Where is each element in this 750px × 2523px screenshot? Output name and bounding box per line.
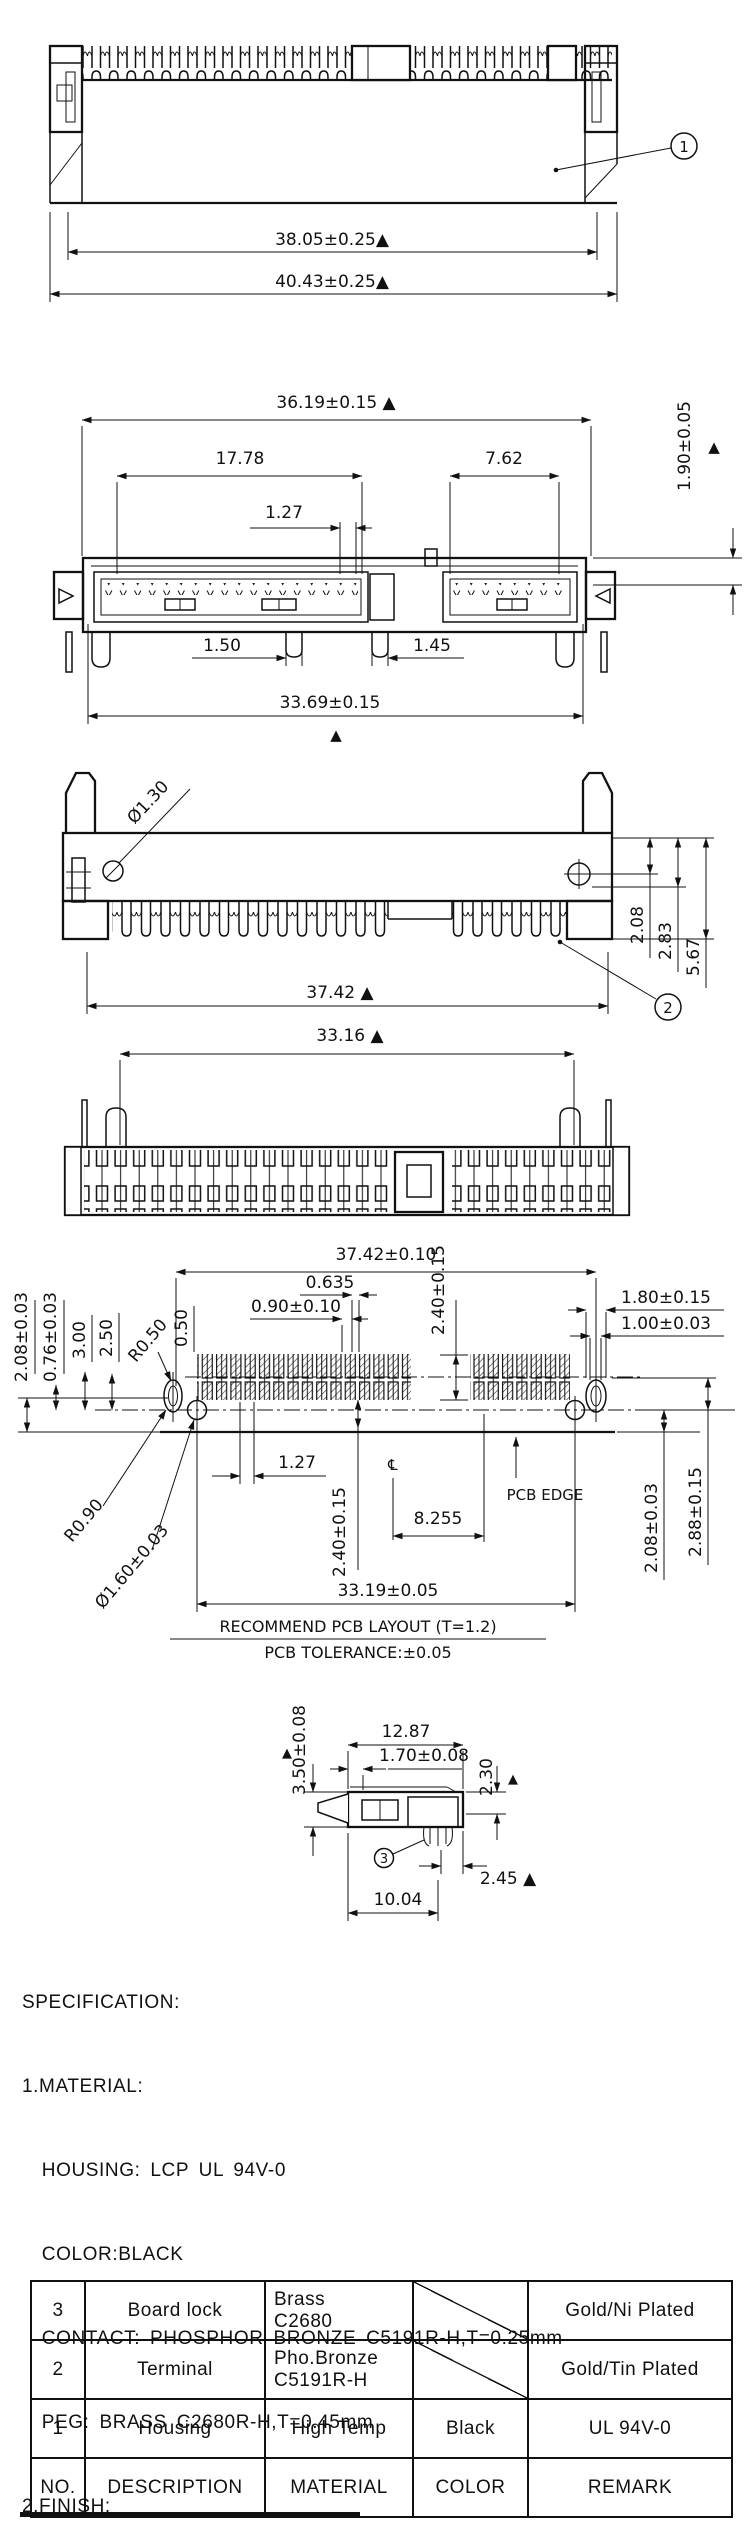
header-material: MATERIAL (265, 2458, 413, 2517)
dim-side-width: 12.87 (382, 1722, 431, 1742)
side-solder-pins (424, 1827, 453, 1846)
parts-table-row-1: 1 Housing High Temp Black UL 94V-0 (31, 2399, 732, 2458)
dim-pcb-half-pitch: 0.635 (306, 1273, 355, 1293)
dim-pcb-pad-width: 0.90±0.10 (251, 1297, 341, 1317)
front-key-block (370, 574, 394, 620)
header-color: COLOR (413, 2458, 528, 2517)
pcb-caption-title: RECOMMEND PCB LAYOUT (T=1.2) (219, 1617, 496, 1636)
dim-pcb-left-3: 3.00 (70, 1321, 90, 1359)
cell-color-1: Black (413, 2399, 528, 2458)
title-block-border (20, 2512, 360, 2517)
balloon-2-number: 2 (663, 999, 673, 1017)
dim-front-lip-height: 1.90±0.05 (675, 401, 695, 491)
dim-top-overall-width: 40.43±0.25▲ (275, 272, 390, 292)
header-no: NO. (31, 2458, 85, 2517)
spec-line-title: SPECIFICATION: (22, 1989, 742, 2017)
spec-line-material: 1.MATERIAL: (22, 2073, 742, 2101)
cell-color-3 (413, 2281, 528, 2340)
bottom-left-post (106, 1108, 126, 1147)
bottom-center-key (395, 1152, 443, 1212)
header-remark: REMARK (528, 2458, 732, 2517)
rear-left-ear (66, 773, 95, 833)
dim-pcb-edge-1: 2.08±0.03 (642, 1483, 662, 1573)
dim-pcb-right-slot-w: 1.00±0.03 (621, 1314, 711, 1334)
dim-front-peg-left: 1.50 (203, 636, 241, 656)
rear-right-ear (583, 773, 612, 833)
bottom-terminals-right (452, 1150, 622, 1212)
header-description: DESCRIPTION (85, 2458, 265, 2517)
dim-side-wall: 1.70±0.08 (379, 1746, 469, 1766)
side-view: ▲ 3.50±0.08 12.87 1.70±0.08 2.30 ▲ 3 (282, 1705, 537, 1921)
dim-top-body-width: 38.05±0.25▲ (275, 230, 390, 250)
dim-pcb-overall: 37.42±0.10 (336, 1245, 437, 1265)
bottom-view: 33.16 ▲ (65, 1026, 629, 1215)
cell-remark-3: Gold/Ni Plated (528, 2281, 732, 2340)
dim-pcb-hole: Ø1.60±0.03 (91, 1521, 173, 1613)
rear-view: Ø1.30 2.08 2.83 5.67 2 37.42 ▲ (63, 773, 714, 1020)
spec-line-color: COLOR:BLACK (22, 2241, 742, 2269)
cell-description-3: Board lock (85, 2281, 265, 2340)
balloon-1-leader (556, 148, 671, 170)
dim-side-pin-offset: 2.45 ▲ (480, 1869, 537, 1889)
bottom-right-post (560, 1108, 580, 1147)
cell-description-2: Terminal (85, 2340, 265, 2399)
balloon-3-leader (393, 1840, 424, 1854)
dim-pcb-left-1: 2.08±0.03 (12, 1292, 32, 1382)
dim-front-pitch: 1.27 (265, 503, 303, 523)
dim-side-height: 3.50±0.08 (290, 1705, 310, 1795)
dim-rear-c: 5.67 (684, 938, 704, 976)
dim-pcb-pitch: 1.27 (278, 1453, 316, 1473)
dim-pcb-pad-height2: 2.40±0.15 (330, 1487, 350, 1577)
dim-pcb-left-2: 0.76±0.03 (41, 1292, 61, 1382)
dim-rear-a: 2.08 (628, 906, 648, 944)
cell-color-2 (413, 2340, 528, 2399)
dim-pcb-pad-height: 2.40±0.15 (429, 1245, 449, 1335)
cell-remark-2: Gold/Tin Plated (528, 2340, 732, 2399)
drawing-canvas: 1 38.05±0.25▲ 40.43±0.25▲ 36.19±0.15 ▲ 1… (0, 0, 750, 1940)
rear-solder-tails-right (452, 901, 567, 945)
top-mid-block (352, 46, 410, 80)
dim-rear-hole: Ø1.30 (124, 777, 174, 828)
dim-pcb-center-offset: 8.255 (414, 1509, 463, 1529)
dim-bottom-span: 33.16 ▲ (316, 1026, 384, 1046)
dim-pcb-radius: R0.90 (61, 1495, 108, 1546)
spec-line-housing: HOUSING: LCP UL 94V-0 (22, 2157, 742, 2185)
cell-material-3: Brass C2680 (265, 2281, 413, 2340)
parts-table: 3 Board lock Brass C2680 Gold/Ni Plated … (30, 2280, 733, 2518)
pcb-caption-tolerance: PCB TOLERANCE:±0.05 (264, 1643, 451, 1662)
cell-no-3: 3 (31, 2281, 85, 2340)
dim-front-slot-long: 17.78 (216, 449, 265, 469)
datum-triangle-front-span: ▲ (330, 726, 342, 744)
bottom-terminals-left (84, 1150, 389, 1212)
side-nose (318, 1794, 348, 1823)
dim-pcb-left-radius: R0.50 (125, 1315, 172, 1366)
parts-table-row-2: 2 Terminal Pho.Bronze C5191R-H Gold/Tin … (31, 2340, 732, 2399)
dim-side-depth: 2.30 (477, 1758, 497, 1796)
drawing-page: 1 38.05±0.25▲ 40.43±0.25▲ 36.19±0.15 ▲ 1… (0, 0, 750, 2523)
cell-material-2: Pho.Bronze C5191R-H (265, 2340, 413, 2399)
parts-table-row-3: 3 Board lock Brass C2680 Gold/Ni Plated (31, 2281, 732, 2340)
cell-material-1: High Temp (265, 2399, 413, 2458)
dim-pcb-edge-2: 2.88±0.15 (686, 1467, 706, 1557)
cell-description-1: Housing (85, 2399, 265, 2458)
rear-solder-tails-left (112, 901, 388, 945)
balloon-3: 3 (375, 1840, 425, 1868)
datum-triangle-side-depth: ▲ (508, 1772, 518, 1787)
rear-board-lock-peg (72, 858, 85, 902)
datum-triangle-front-lip: ▲ (708, 438, 720, 456)
side-rear-block (408, 1797, 458, 1827)
dim-side-pin-span: 10.04 (374, 1890, 423, 1910)
rear-body (63, 833, 612, 901)
dim-pcb-left-5: 0.50 (172, 1309, 192, 1347)
dim-pcb-right-slot-len: 1.80±0.15 (621, 1288, 711, 1308)
dim-pcb-left-4: 2.50 (97, 1319, 117, 1357)
pcb-edge-label: PCB EDGE (507, 1486, 584, 1504)
front-left-peg (92, 632, 110, 667)
top-pin-row (82, 46, 612, 80)
top-view: 1 38.05±0.25▲ 40.43±0.25▲ (50, 46, 697, 302)
dim-rear-overall: 37.42 ▲ (306, 983, 374, 1003)
front-right-peg (556, 632, 574, 667)
dim-pcb-span: 33.19±0.05 (338, 1581, 439, 1601)
cell-no-2: 2 (31, 2340, 85, 2399)
pcb-layout: 37.42±0.10 0.635 0.90±0.10 2.40±0.15 2.0… (12, 1245, 735, 1662)
parts-table-header-row: NO. DESCRIPTION MATERIAL COLOR REMARK (31, 2458, 732, 2517)
cell-no-1: 1 (31, 2399, 85, 2458)
cell-remark-1: UL 94V-0 (528, 2399, 732, 2458)
dim-front-slot-short: 7.62 (485, 449, 523, 469)
balloon-1: 1 (554, 133, 697, 172)
balloon-1-number: 1 (679, 138, 689, 156)
front-view: 36.19±0.15 ▲ 17.78 7.62 1.27 1.90±0.05 ▲ (54, 393, 742, 744)
dim-front-overall: 36.19±0.15 ▲ (276, 393, 396, 413)
balloon-3-number: 3 (380, 1852, 388, 1867)
dim-rear-b: 2.83 (656, 922, 676, 960)
dim-front-span: 33.69±0.15 (280, 693, 381, 713)
centerline-symbol: ℄ (387, 1456, 398, 1474)
dim-front-peg-right: 1.45 (413, 636, 451, 656)
